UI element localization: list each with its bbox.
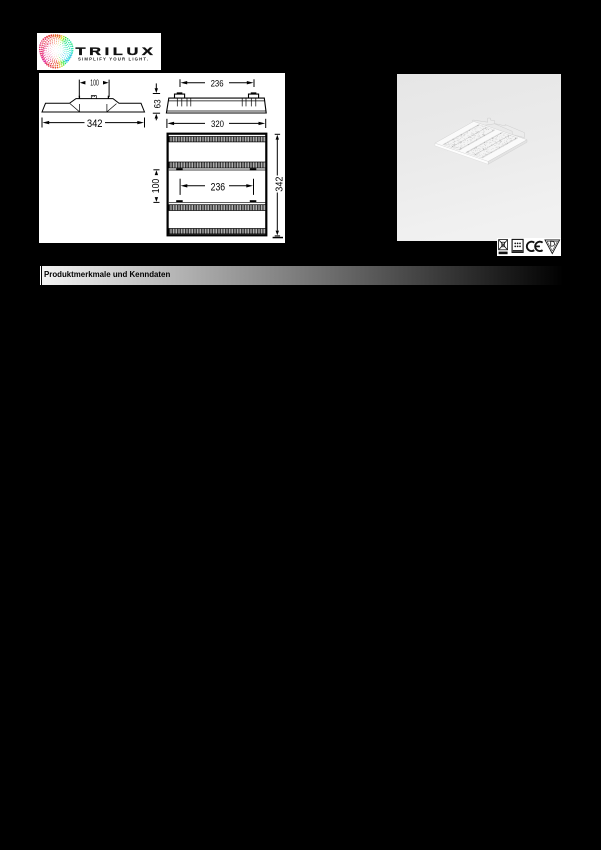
svg-text:100: 100 xyxy=(150,179,162,194)
svg-text:SIMPLIFY YOUR LIGHT.: SIMPLIFY YOUR LIGHT. xyxy=(78,57,149,62)
svg-text:320: 320 xyxy=(211,119,224,129)
svg-text:236: 236 xyxy=(211,182,226,194)
svg-text:63: 63 xyxy=(152,99,162,108)
svg-text:342: 342 xyxy=(274,176,285,191)
svg-text:100: 100 xyxy=(90,79,99,88)
svg-text:342: 342 xyxy=(87,118,103,130)
svg-text:236: 236 xyxy=(211,78,224,88)
